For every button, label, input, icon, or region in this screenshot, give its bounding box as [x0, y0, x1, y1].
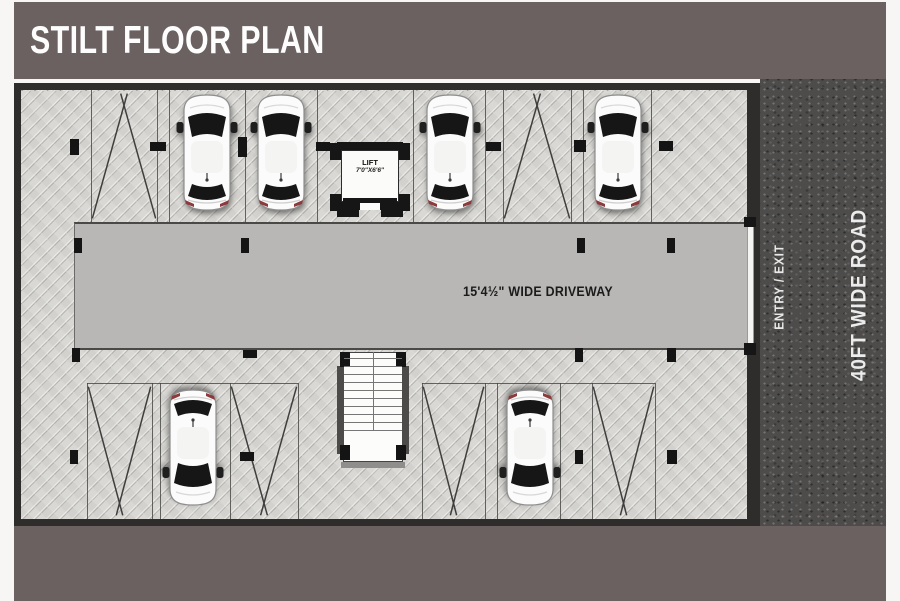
- stair-post: [396, 445, 406, 460]
- lift-frame: [337, 210, 359, 217]
- parking-bay-line: [317, 90, 318, 222]
- parking-bay-line: [157, 90, 158, 222]
- lift-frame: [381, 210, 403, 217]
- road-area: ENTRY / EXIT 40FT WIDE ROAD: [760, 79, 886, 526]
- lift-cabin: LIFT 7'0"X6'6": [341, 150, 399, 202]
- parking-bay-line: [160, 383, 161, 519]
- empty-bay-cross-marking: [230, 384, 298, 518]
- gate-post: [744, 343, 756, 355]
- stair-flight-divider: [373, 352, 374, 431]
- parked-car: [499, 388, 561, 507]
- column-marker: [243, 350, 257, 358]
- empty-bay-cross-marking: [91, 91, 157, 221]
- driveway: 15'4½" WIDE DRIVEWAY: [74, 222, 747, 350]
- parked-car: [162, 388, 224, 507]
- column-marker: [667, 450, 677, 464]
- column-marker: [74, 238, 82, 253]
- column-marker: [70, 139, 79, 155]
- lift-door: [360, 203, 380, 210]
- stair-landing-edge: [341, 462, 405, 468]
- column-marker: [238, 137, 247, 157]
- entry-gate-opening: [747, 225, 754, 345]
- column-marker: [150, 142, 166, 151]
- parking-bay-line: [497, 383, 498, 519]
- parked-car: [419, 93, 481, 212]
- empty-bay-cross-marking: [422, 384, 485, 518]
- column-marker: [577, 238, 585, 253]
- road-width-label: 40FT WIDE ROAD: [847, 209, 872, 381]
- column-marker: [667, 238, 675, 253]
- column-marker: [575, 450, 583, 464]
- title-bar: STILT FLOOR PLAN: [14, 2, 886, 79]
- column-marker: [70, 450, 78, 464]
- parking-bay-line: [152, 383, 153, 519]
- column-marker: [667, 348, 676, 362]
- stilt-floor-area: 15'4½" WIDE DRIVEWAY: [21, 90, 747, 519]
- stair-post: [340, 445, 350, 460]
- column-marker: [316, 142, 330, 151]
- column-marker: [575, 348, 583, 362]
- driveway-width-label: 15'4½" WIDE DRIVEWAY: [384, 284, 691, 299]
- lift: LIFT 7'0"X6'6": [329, 140, 411, 218]
- stair-post: [396, 352, 406, 367]
- parking-bay-line: [583, 90, 584, 222]
- parking-bay-line: [571, 90, 572, 222]
- stair-post: [340, 352, 350, 367]
- column-marker: [241, 238, 249, 253]
- column-marker: [574, 140, 586, 152]
- column-marker: [240, 452, 254, 461]
- column-marker: [486, 142, 501, 151]
- parked-car: [587, 93, 649, 212]
- parked-car: [176, 93, 238, 212]
- parking-bay-line: [651, 90, 652, 222]
- parking-bay-line: [485, 383, 486, 519]
- floor-plan-sheet: STILT FLOOR PLAN: [0, 0, 900, 601]
- parking-bay-line: [655, 383, 656, 519]
- entry-exit-label: ENTRY / EXIT: [772, 244, 787, 330]
- column-marker: [72, 348, 80, 362]
- empty-bay-cross-marking: [87, 384, 152, 518]
- parking-bay-line: [169, 90, 170, 222]
- gate-post: [744, 217, 756, 227]
- empty-bay-cross-marking: [503, 91, 571, 221]
- staircase: [334, 352, 412, 470]
- column-marker: [659, 141, 673, 151]
- bottom-bar: [14, 526, 886, 601]
- lift-label: LIFT: [342, 158, 398, 167]
- parking-bay-line: [485, 90, 486, 222]
- parking-bay-line: [413, 90, 414, 222]
- empty-bay-cross-marking: [592, 384, 655, 518]
- parked-car: [250, 93, 312, 212]
- page-title: STILT FLOOR PLAN: [30, 19, 325, 63]
- lift-size-label: 7'0"X6'6": [342, 167, 398, 175]
- stair-rail: [337, 366, 344, 454]
- building-outline: 15'4½" WIDE DRIVEWAY: [14, 83, 760, 527]
- stair-rail: [402, 366, 409, 454]
- parking-bay-line: [298, 383, 299, 519]
